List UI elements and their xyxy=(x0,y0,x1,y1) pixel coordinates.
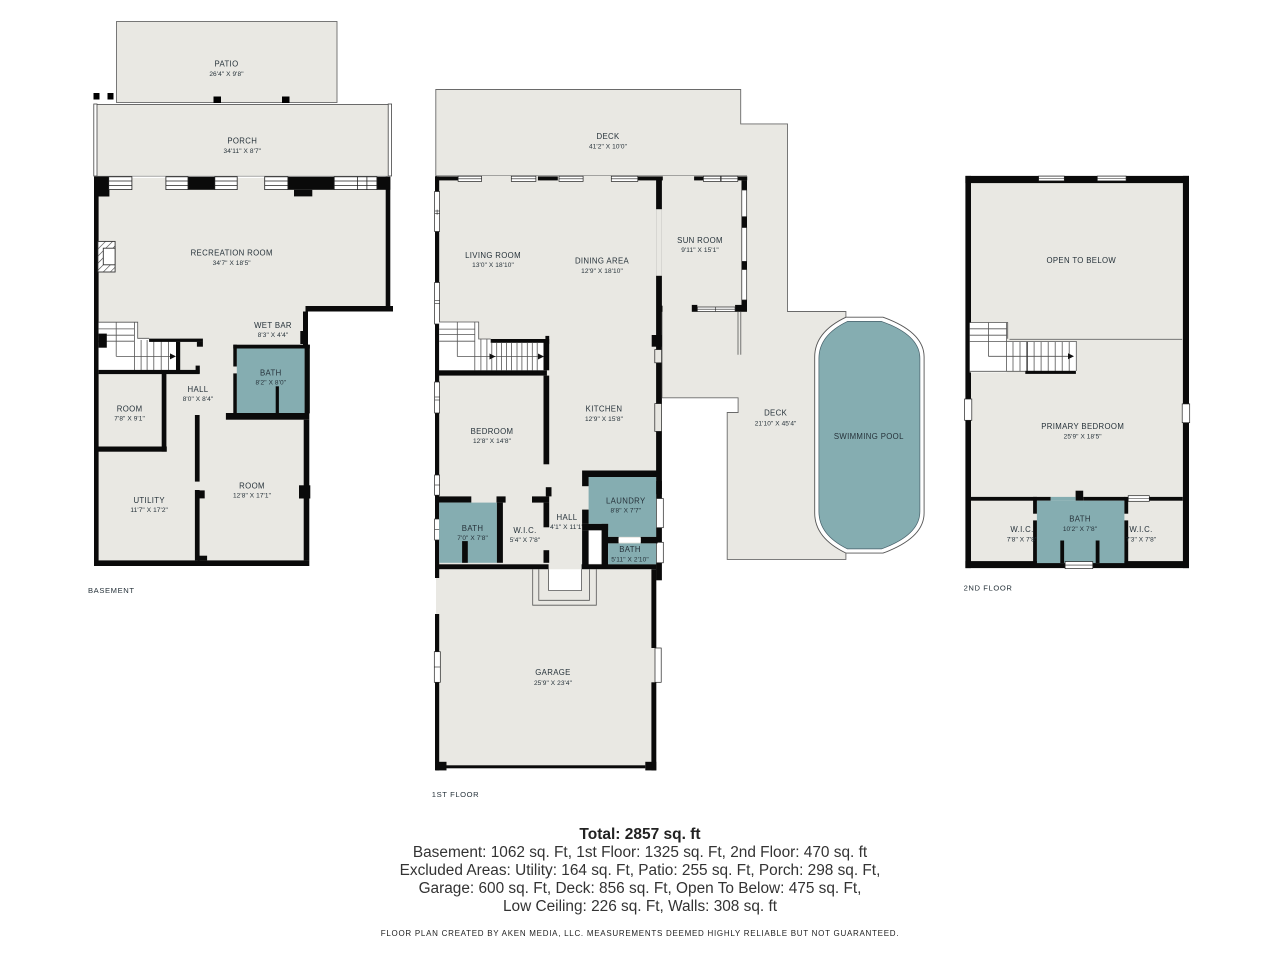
svg-text:ROOM: ROOM xyxy=(117,405,143,414)
svg-text:PRIMARY BEDROOM: PRIMARY BEDROOM xyxy=(1041,422,1124,431)
svg-text:ROOM: ROOM xyxy=(239,482,265,491)
svg-text:2ND FLOOR: 2ND FLOOR xyxy=(964,584,1013,593)
svg-text:13'0" X 18'10": 13'0" X 18'10" xyxy=(472,262,514,269)
svg-text:7'3" X 7'8": 7'3" X 7'8" xyxy=(1126,537,1157,544)
svg-text:Low Ceiling: 226 sq. Ft, Walls: Low Ceiling: 226 sq. Ft, Walls: 308 sq. … xyxy=(503,898,778,915)
svg-text:W.I.C.: W.I.C. xyxy=(513,526,536,535)
svg-text:OPEN TO BELOW: OPEN TO BELOW xyxy=(1046,256,1116,265)
svg-text:RECREATION ROOM: RECREATION ROOM xyxy=(191,249,273,258)
svg-text:26'4" X 9'8": 26'4" X 9'8" xyxy=(209,71,244,78)
svg-text:8'2" X 8'0": 8'2" X 8'0" xyxy=(255,380,286,387)
svg-text:W.I.C.: W.I.C. xyxy=(1010,525,1033,534)
svg-text:11'7" X 17'2": 11'7" X 17'2" xyxy=(130,507,168,514)
svg-text:DINING AREA: DINING AREA xyxy=(575,257,630,266)
svg-text:7'8" X 7'8": 7'8" X 7'8" xyxy=(1007,537,1038,544)
svg-text:SUN ROOM: SUN ROOM xyxy=(677,236,723,245)
svg-text:25'9" X 23'4": 25'9" X 23'4" xyxy=(534,680,573,687)
svg-text:12'8" X 14'8": 12'8" X 14'8" xyxy=(473,438,512,445)
svg-text:10'2" X 7'8": 10'2" X 7'8" xyxy=(1063,526,1098,533)
svg-text:7'8" X 9'1": 7'8" X 9'1" xyxy=(114,416,145,423)
svg-text:25'9" X 18'5": 25'9" X 18'5" xyxy=(1064,434,1103,441)
svg-text:12'9" X 18'10": 12'9" X 18'10" xyxy=(581,268,623,275)
svg-text:HALL: HALL xyxy=(557,513,578,522)
svg-text:21'10" X 45'4": 21'10" X 45'4" xyxy=(755,421,797,428)
svg-text:Garage: 600 sq. Ft, Deck: 856: Garage: 600 sq. Ft, Deck: 856 sq. Ft, Op… xyxy=(419,880,862,897)
svg-text:FLOOR PLAN CREATED BY AKEN MED: FLOOR PLAN CREATED BY AKEN MEDIA, LLC. M… xyxy=(381,929,899,938)
svg-text:8'3" X 4'4": 8'3" X 4'4" xyxy=(258,332,289,339)
svg-text:LAUNDRY: LAUNDRY xyxy=(606,497,646,506)
svg-text:HALL: HALL xyxy=(188,385,209,394)
svg-text:BASEMENT: BASEMENT xyxy=(88,586,135,595)
svg-text:PATIO: PATIO xyxy=(215,60,239,69)
svg-text:8'8" X 7'7": 8'8" X 7'7" xyxy=(610,508,641,515)
svg-text:34'7" X 18'5": 34'7" X 18'5" xyxy=(213,260,252,267)
svg-text:BATH: BATH xyxy=(619,545,641,554)
svg-text:9'11" X 15'1": 9'11" X 15'1" xyxy=(681,247,719,254)
svg-text:5'4" X 7'8": 5'4" X 7'8" xyxy=(510,537,541,544)
svg-text:DECK: DECK xyxy=(596,132,620,141)
svg-text:BEDROOM: BEDROOM xyxy=(471,427,514,436)
svg-text:Basement: 1062 sq. Ft, 1st Flo: Basement: 1062 sq. Ft, 1st Floor: 1325 s… xyxy=(413,844,868,861)
svg-text:12'8" X 17'1": 12'8" X 17'1" xyxy=(233,493,272,500)
svg-text:DECK: DECK xyxy=(764,409,788,418)
svg-text:W.I.C.: W.I.C. xyxy=(1129,525,1152,534)
svg-text:BATH: BATH xyxy=(260,369,282,378)
svg-text:1ST FLOOR: 1ST FLOOR xyxy=(432,790,479,799)
svg-text:7'0" X 7'8": 7'0" X 7'8" xyxy=(457,535,488,542)
svg-text:BATH: BATH xyxy=(462,524,484,533)
svg-text:SWIMMING POOL: SWIMMING POOL xyxy=(834,432,904,441)
svg-text:34'11" X 8'7": 34'11" X 8'7" xyxy=(224,148,262,155)
svg-text:Excluded Areas: Utility: 164 s: Excluded Areas: Utility: 164 sq. Ft, Pat… xyxy=(400,862,881,879)
svg-text:BATH: BATH xyxy=(1069,515,1091,524)
svg-text:8'0" X 8'4": 8'0" X 8'4" xyxy=(183,396,214,403)
svg-text:WET BAR: WET BAR xyxy=(254,321,292,330)
svg-text:UTILITY: UTILITY xyxy=(133,496,165,505)
svg-text:PORCH: PORCH xyxy=(227,137,257,146)
svg-text:Total: 2857 sq. ft: Total: 2857 sq. ft xyxy=(579,826,700,843)
svg-text:GARAGE: GARAGE xyxy=(535,668,570,677)
svg-text:KITCHEN: KITCHEN xyxy=(586,405,623,414)
svg-text:5'11" X 2'10": 5'11" X 2'10" xyxy=(611,557,649,564)
svg-text:4'1" X 11'1": 4'1" X 11'1" xyxy=(550,524,584,531)
svg-text:12'9" X 15'8": 12'9" X 15'8" xyxy=(585,416,624,423)
svg-text:LIVING ROOM: LIVING ROOM xyxy=(465,251,521,260)
svg-text:41'2" X 10'0": 41'2" X 10'0" xyxy=(589,144,628,151)
